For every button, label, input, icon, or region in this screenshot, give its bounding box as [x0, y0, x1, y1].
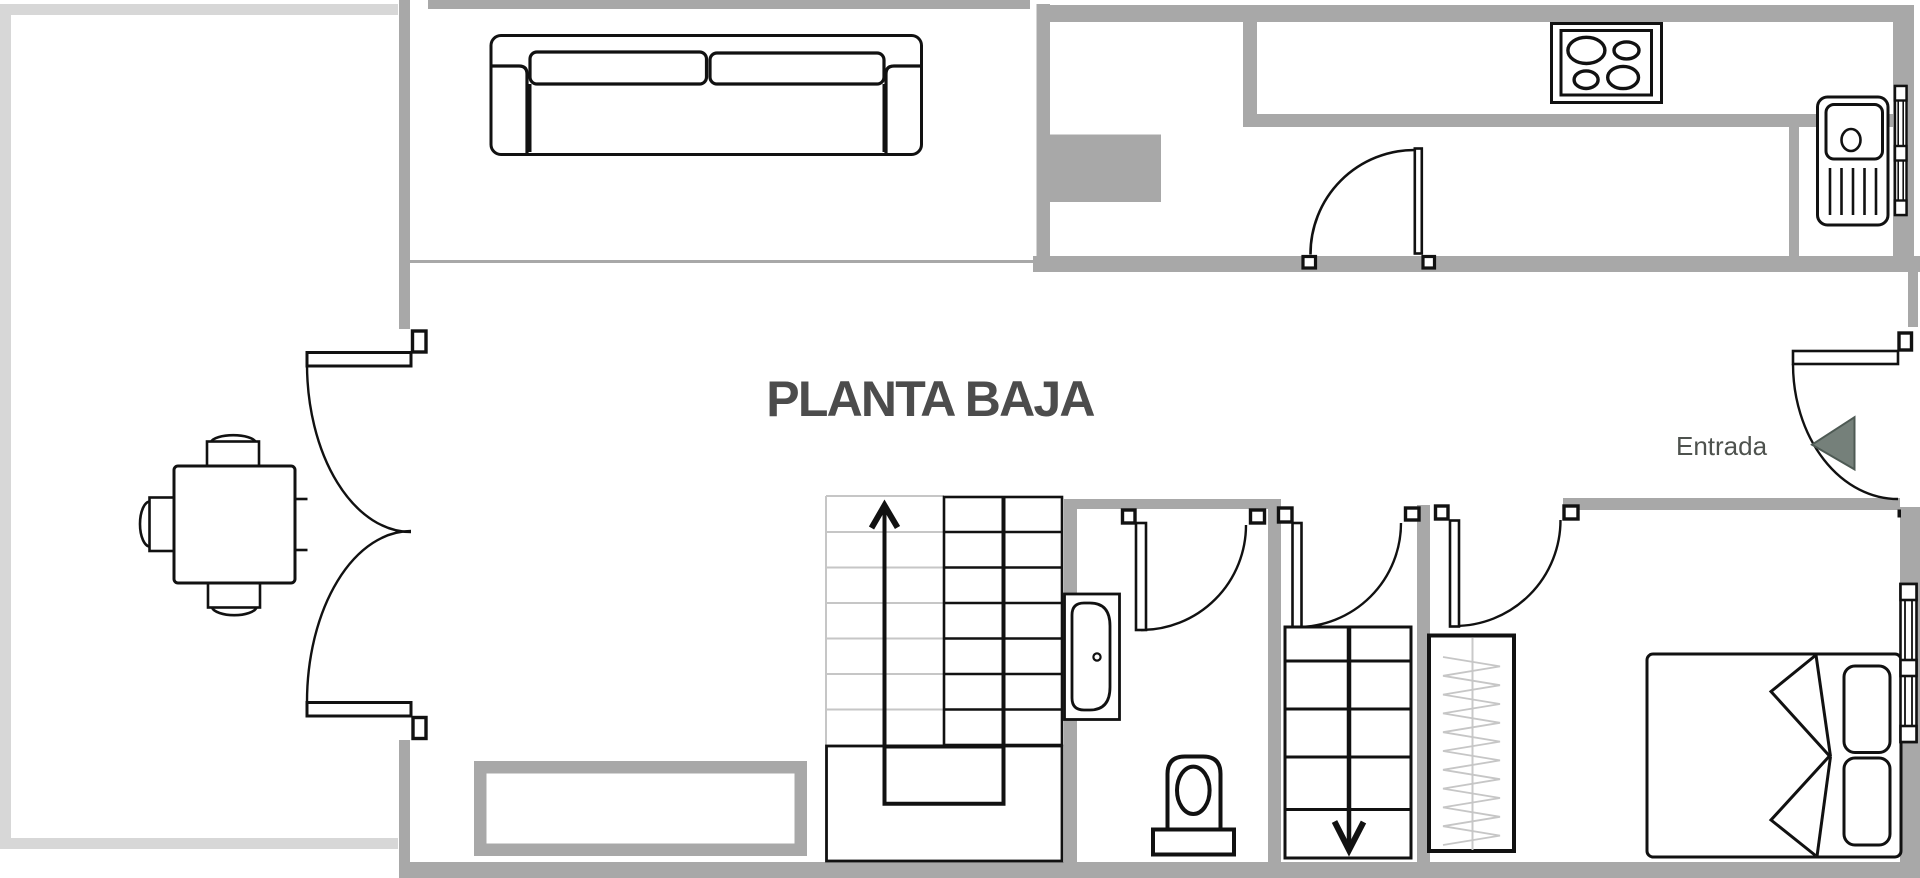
svg-text:Entrada: Entrada [1676, 431, 1768, 461]
svg-text:PLANTA BAJA: PLANTA BAJA [766, 371, 1094, 427]
